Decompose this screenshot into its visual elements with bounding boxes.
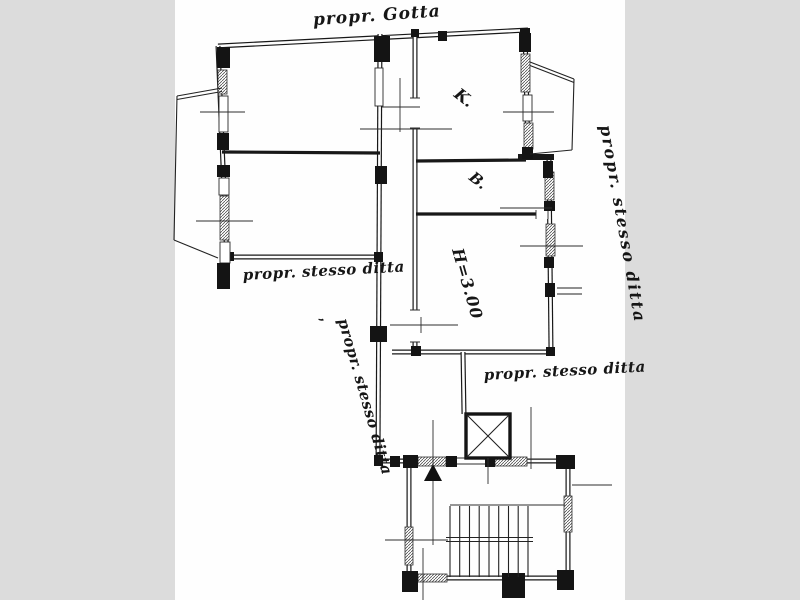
scanned-floor-plan: propr. Gotta propr. stesso ditta , propr… bbox=[0, 0, 800, 600]
floor-plan-drawing: propr. Gotta propr. stesso ditta , propr… bbox=[0, 0, 800, 600]
